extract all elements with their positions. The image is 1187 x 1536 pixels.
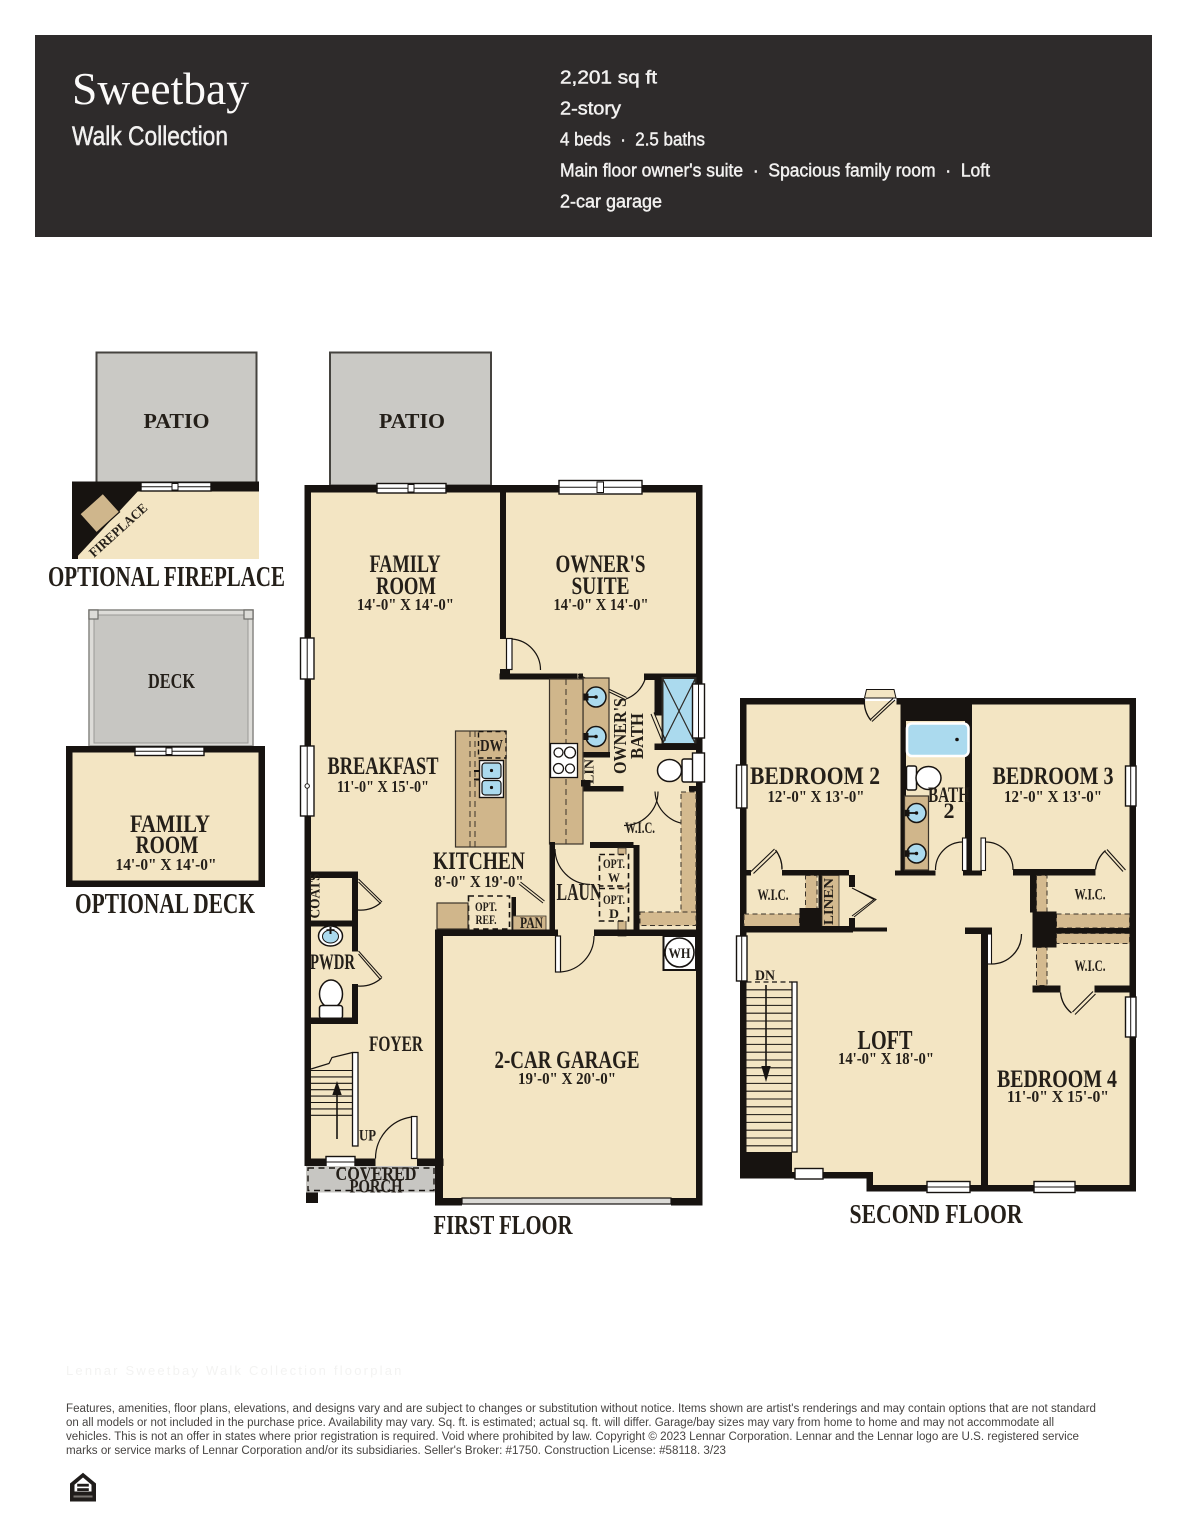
svg-text:W.I.C.: W.I.C. bbox=[1075, 958, 1106, 975]
svg-text:11'-0" X 15'-0": 11'-0" X 15'-0" bbox=[1007, 1087, 1109, 1106]
svg-text:OPT.: OPT. bbox=[603, 856, 625, 871]
svg-text:Lennar Sweetbay Walk Collectio: Lennar Sweetbay Walk Collection floorpla… bbox=[66, 1363, 404, 1378]
svg-text:PORCH: PORCH bbox=[350, 1177, 403, 1198]
svg-text:11'-0" X 15'-0": 11'-0" X 15'-0" bbox=[337, 777, 429, 796]
svg-text:DW: DW bbox=[480, 736, 503, 755]
svg-text:19'-0" X 20'-0": 19'-0" X 20'-0" bbox=[518, 1069, 616, 1088]
svg-text:W: W bbox=[608, 870, 620, 885]
svg-text:14'-0" X 14'-0": 14'-0" X 14'-0" bbox=[357, 595, 454, 614]
svg-text:2,201 sq ft: 2,201 sq ft bbox=[560, 68, 657, 88]
svg-text:KITCHEN: KITCHEN bbox=[433, 848, 525, 875]
svg-text:COATS: COATS bbox=[308, 874, 324, 919]
svg-text:14'-0" X 14'-0": 14'-0" X 14'-0" bbox=[116, 855, 217, 874]
svg-text:2-car garage: 2-car garage bbox=[560, 192, 662, 212]
svg-text:on all models or not included: on all models or not included in the pur… bbox=[66, 1417, 1054, 1429]
svg-text:BEDROOM 3: BEDROOM 3 bbox=[993, 763, 1114, 790]
svg-text:14'-0" X 14'-0": 14'-0" X 14'-0" bbox=[554, 595, 649, 614]
svg-text:W.I.C.: W.I.C. bbox=[1075, 887, 1106, 904]
svg-text:12'-0" X 13'-0": 12'-0" X 13'-0" bbox=[1004, 787, 1102, 806]
svg-text:LAUN: LAUN bbox=[557, 880, 602, 906]
svg-text:vehicles. This is not an offer: vehicles. This is not an offer in states… bbox=[66, 1431, 1079, 1443]
svg-text:4 beds · 2.5 baths: 4 beds · 2.5 baths bbox=[560, 130, 705, 150]
svg-text:Main floor owner's suite · S: Main floor owner's suite · Spacious fami… bbox=[560, 161, 990, 181]
svg-text:DECK: DECK bbox=[148, 669, 196, 693]
svg-text:PAN: PAN bbox=[520, 915, 543, 932]
svg-text:2-story: 2-story bbox=[560, 99, 621, 119]
svg-text:14'-0" X 18'-0": 14'-0" X 18'-0" bbox=[838, 1049, 934, 1068]
svg-text:FIRST FLOOR: FIRST FLOOR bbox=[434, 1210, 573, 1240]
svg-text:PATIO: PATIO bbox=[144, 409, 210, 433]
svg-text:PWDR: PWDR bbox=[310, 949, 356, 974]
svg-text:W.I.C.: W.I.C. bbox=[625, 820, 655, 837]
svg-text:BREAKFAST: BREAKFAST bbox=[328, 753, 439, 780]
svg-text:BATH: BATH bbox=[627, 713, 647, 759]
svg-text:REF.: REF. bbox=[476, 912, 497, 927]
svg-text:2: 2 bbox=[944, 798, 955, 823]
svg-text:FOYER: FOYER bbox=[369, 1031, 424, 1056]
svg-text:OPTIONAL FIREPLACE: OPTIONAL FIREPLACE bbox=[48, 562, 285, 593]
svg-text:DN: DN bbox=[755, 968, 775, 984]
svg-text:W.I.C.: W.I.C. bbox=[758, 887, 789, 904]
svg-text:D: D bbox=[609, 906, 619, 921]
svg-text:LINEN: LINEN bbox=[822, 878, 837, 925]
svg-text:8'-0" X 19'-0": 8'-0" X 19'-0" bbox=[435, 872, 524, 891]
svg-text:UP: UP bbox=[359, 1128, 376, 1145]
svg-text:WH: WH bbox=[669, 946, 691, 962]
svg-text:Walk Collection: Walk Collection bbox=[72, 121, 228, 151]
svg-text:BEDROOM 2: BEDROOM 2 bbox=[750, 763, 880, 790]
svg-text:Features, amenities, floor pla: Features, amenities, floor plans, elevat… bbox=[66, 1403, 1096, 1415]
svg-text:marks or service marks of Lenn: marks or service marks of Lennar Corpora… bbox=[66, 1445, 726, 1457]
svg-text:12'-0" X 13'-0": 12'-0" X 13'-0" bbox=[768, 787, 865, 806]
svg-text:OPTIONAL DECK: OPTIONAL DECK bbox=[75, 889, 255, 920]
svg-text:OPT.: OPT. bbox=[603, 892, 625, 907]
svg-text:Sweetbay: Sweetbay bbox=[72, 63, 249, 114]
svg-text:PATIO: PATIO bbox=[379, 409, 445, 433]
svg-text:SECOND FLOOR: SECOND FLOOR bbox=[850, 1199, 1023, 1229]
